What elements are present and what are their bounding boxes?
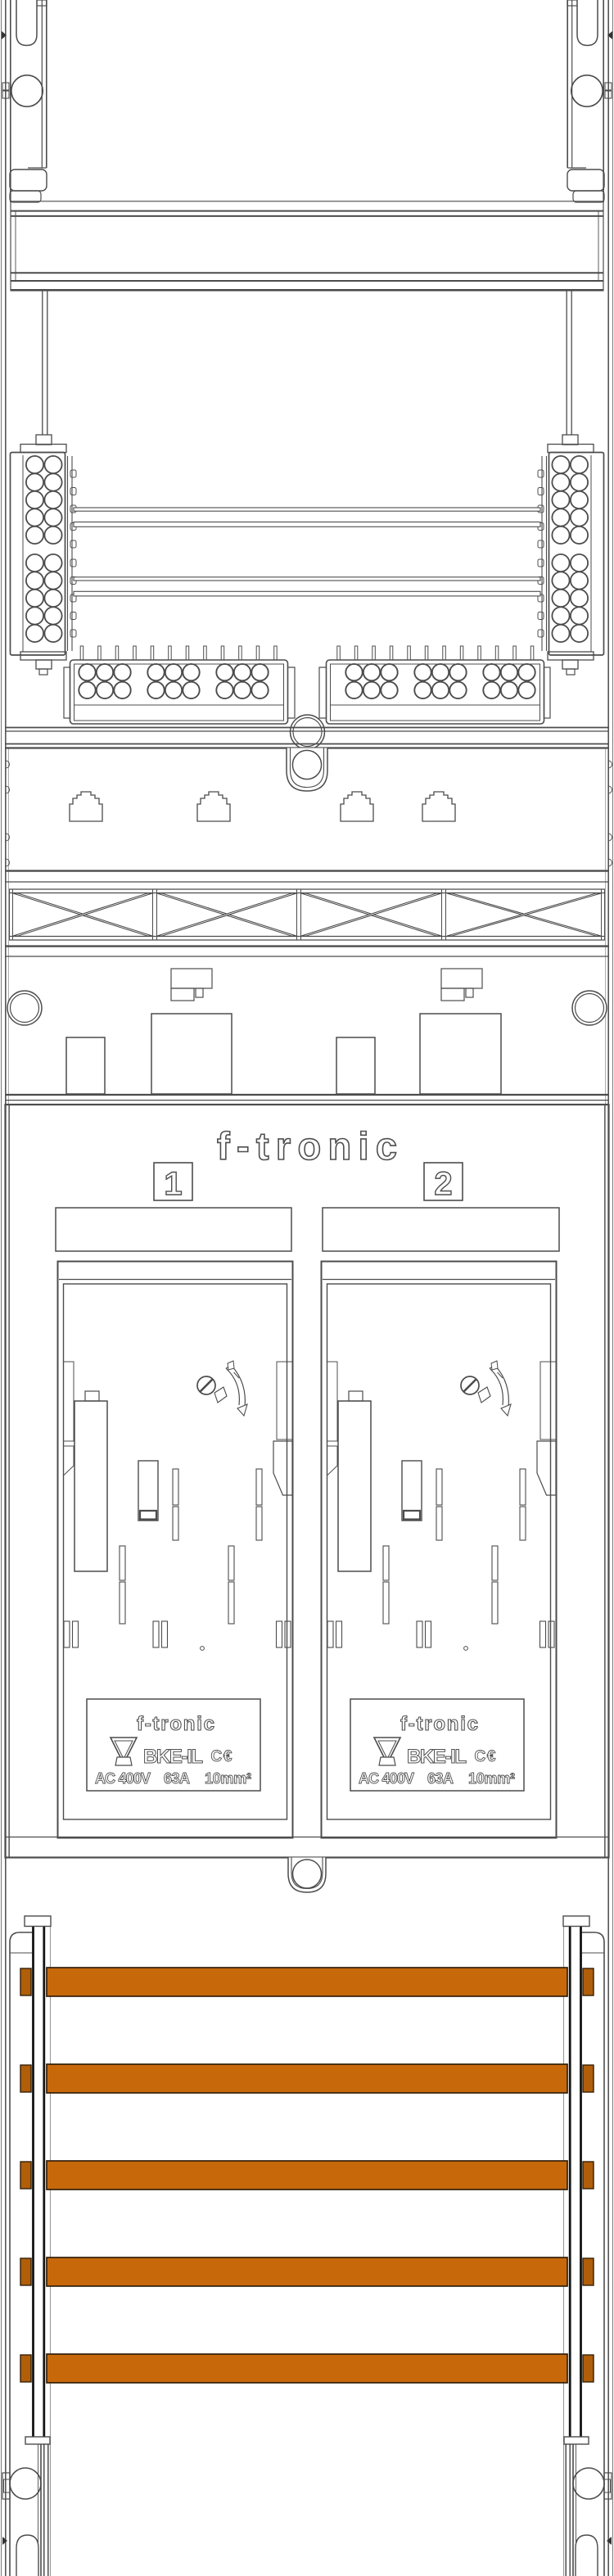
top-mounting-bracket-right	[567, 0, 612, 202]
field-2-label: 2	[424, 1163, 463, 1202]
busbar-2	[47, 2064, 567, 2093]
module-cutout-3	[341, 792, 373, 821]
busbar-end-left-1	[20, 1968, 31, 1995]
din-holder-block	[336, 1037, 375, 1094]
field-1-number: 1	[164, 1166, 182, 1202]
busbar-3	[47, 2161, 567, 2190]
terminal-block-horizontal-right	[319, 646, 550, 724]
terminal-block-vertical-left	[11, 435, 77, 675]
din-holder-block	[420, 1014, 501, 1094]
hanger-rails-upper	[43, 291, 571, 435]
top-mounting-bracket-left	[2, 0, 47, 202]
terminal-block-vertical-right	[538, 435, 604, 675]
busbar-end-right-5	[583, 2355, 594, 2382]
truss-brace	[6, 871, 609, 956]
busbar-end-right-3	[583, 2162, 594, 2189]
knockout-right	[572, 991, 607, 1025]
cable-clamp-icon-right	[441, 969, 482, 1001]
field-1-label: 1	[154, 1163, 192, 1202]
busbar-end-right-1	[583, 1968, 594, 1995]
meter-plate-2	[322, 1262, 557, 1838]
busbar-end-left-4	[20, 2258, 31, 2285]
module-cutout-1	[70, 792, 102, 821]
drawing-canvas: f-tronic BKE-IL C€ AC 400V 63A 10mm²	[0, 0, 614, 2576]
meter-board-drawing: f-tronic BKE-IL C€ AC 400V 63A 10mm²	[0, 0, 614, 2576]
busbar-end-right-2	[583, 2065, 594, 2092]
busbar-end-right-4	[583, 2258, 594, 2285]
din-holder-block	[151, 1014, 232, 1094]
meter-panel: f-tronic 1 2	[6, 1105, 609, 1858]
rail-inner-lines	[51, 1926, 564, 2576]
busbar-end-left-2	[20, 2065, 31, 2092]
upper-connection-rails	[74, 508, 540, 596]
field-2-number: 2	[434, 1166, 452, 1202]
slot-bar-2	[323, 1208, 559, 1251]
module-cutout-2	[197, 792, 230, 821]
cover-section	[6, 969, 609, 1100]
knockout-left	[7, 991, 42, 1025]
busbar-end-left-3	[20, 2162, 31, 2189]
busbar-1	[47, 1968, 567, 1996]
busbar-5	[47, 2354, 567, 2383]
terminal-block-horizontal-left	[64, 646, 295, 724]
busbars	[20, 1968, 594, 2383]
busbar-end-left-5	[20, 2355, 31, 2382]
knockout-tab-lower	[288, 1858, 326, 1893]
cable-clamp-icon-left	[171, 969, 212, 1001]
meter-plate-1	[58, 1262, 293, 1838]
busbar-4	[47, 2257, 567, 2286]
top-crossbar	[11, 201, 604, 290]
slot-bar-1	[56, 1208, 291, 1251]
din-holder-block	[66, 1037, 105, 1094]
knockout-tab-mid	[287, 748, 327, 792]
module-cutout-4	[422, 792, 455, 821]
brand-logo-text: f-tronic	[217, 1124, 397, 1168]
